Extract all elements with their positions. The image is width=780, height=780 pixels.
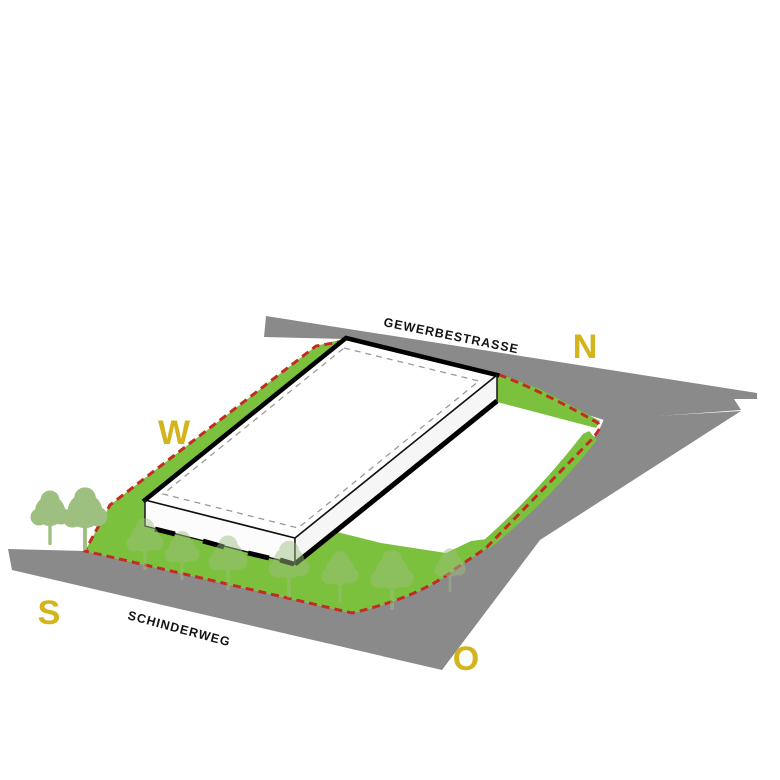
compass-south-label: S	[38, 594, 61, 632]
compass-east-label: O	[453, 640, 479, 678]
site-plan: GEWERBESTRASSE SCHINDERWEG N W S O	[0, 0, 780, 780]
compass-north-label: N	[573, 328, 598, 366]
compass-west-label: W	[158, 414, 191, 452]
